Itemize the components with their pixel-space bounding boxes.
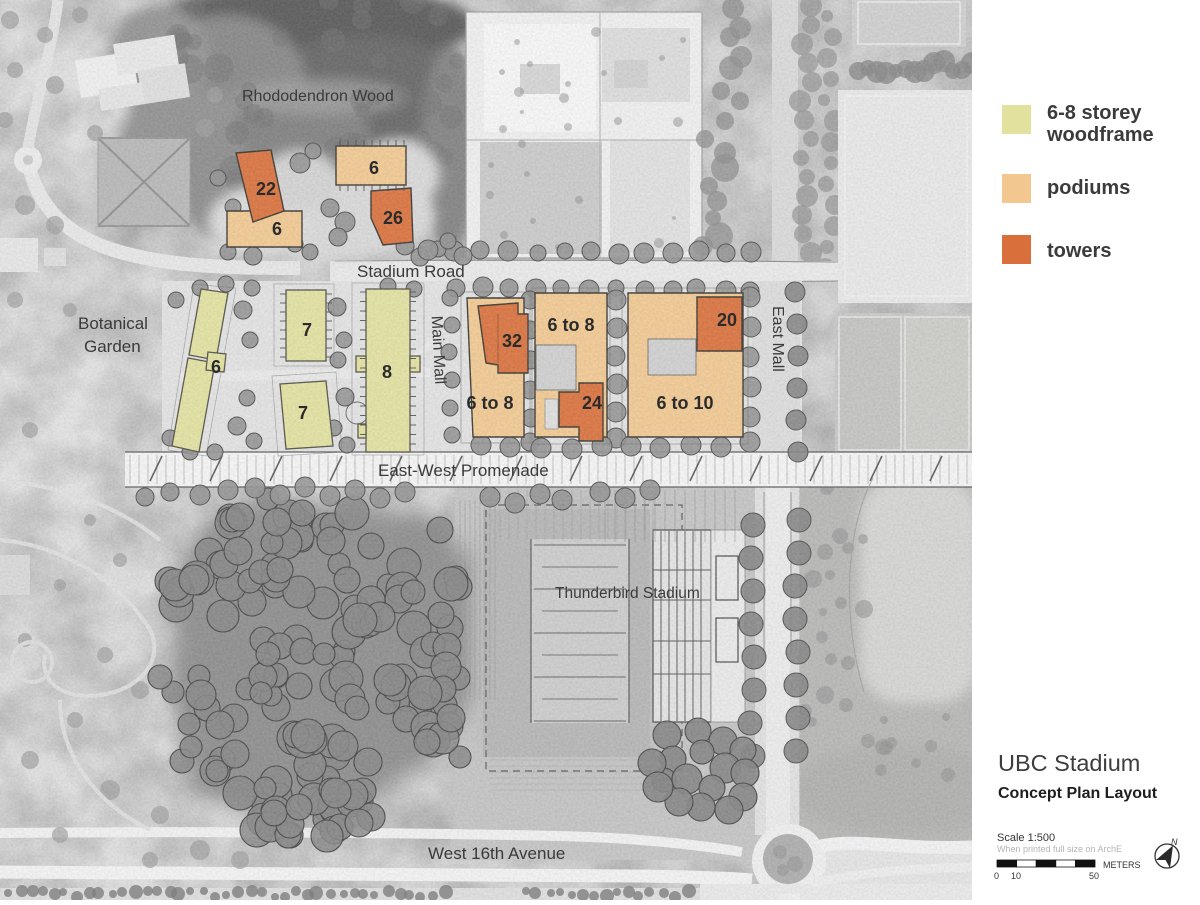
svg-text:Concept Plan Layout: Concept Plan Layout (998, 785, 1158, 802)
svg-text:7: 7 (298, 403, 308, 423)
svg-text:0: 0 (994, 871, 999, 881)
svg-text:6 to 8: 6 to 8 (547, 315, 594, 335)
svg-text:22: 22 (256, 179, 276, 199)
svg-text:Stadium Road: Stadium Road (357, 262, 465, 281)
svg-text:When printed full size on Arch: When printed full size on ArchE (997, 844, 1122, 854)
svg-text:N: N (1171, 837, 1178, 847)
svg-text:Garden: Garden (84, 337, 141, 356)
svg-text:8: 8 (382, 362, 392, 382)
svg-text:Scale 1:500: Scale 1:500 (997, 832, 1055, 844)
svg-text:Thunderbird Stadium: Thunderbird Stadium (555, 585, 700, 602)
svg-text:6: 6 (272, 219, 282, 239)
svg-text:podiums: podiums (1047, 177, 1130, 199)
svg-text:Botanical: Botanical (78, 314, 148, 333)
svg-text:7: 7 (302, 320, 312, 340)
svg-text:50: 50 (1089, 871, 1099, 881)
svg-text:METERS: METERS (1103, 860, 1141, 870)
svg-text:6 to 10: 6 to 10 (656, 393, 713, 413)
svg-text:towers: towers (1047, 240, 1111, 262)
svg-text:East-West Promenade: East-West Promenade (378, 461, 549, 480)
svg-text:32: 32 (502, 331, 522, 351)
svg-text:woodframe: woodframe (1046, 124, 1154, 146)
svg-text:6 to 8: 6 to 8 (466, 393, 513, 413)
svg-text:6: 6 (211, 357, 221, 377)
svg-text:20: 20 (717, 310, 737, 330)
svg-text:10: 10 (1011, 871, 1021, 881)
svg-text:Rhododendron Wood: Rhododendron Wood (242, 88, 394, 105)
svg-text:East Mall: East Mall (769, 306, 786, 372)
svg-text:24: 24 (582, 393, 602, 413)
svg-text:26: 26 (383, 208, 403, 228)
svg-text:Main Mall: Main Mall (428, 315, 449, 384)
svg-text:6: 6 (369, 158, 379, 178)
svg-text:West 16th Avenue: West 16th Avenue (428, 844, 565, 863)
svg-text:UBC Stadium: UBC Stadium (998, 750, 1140, 776)
svg-text:6-8 storey: 6-8 storey (1047, 102, 1142, 124)
